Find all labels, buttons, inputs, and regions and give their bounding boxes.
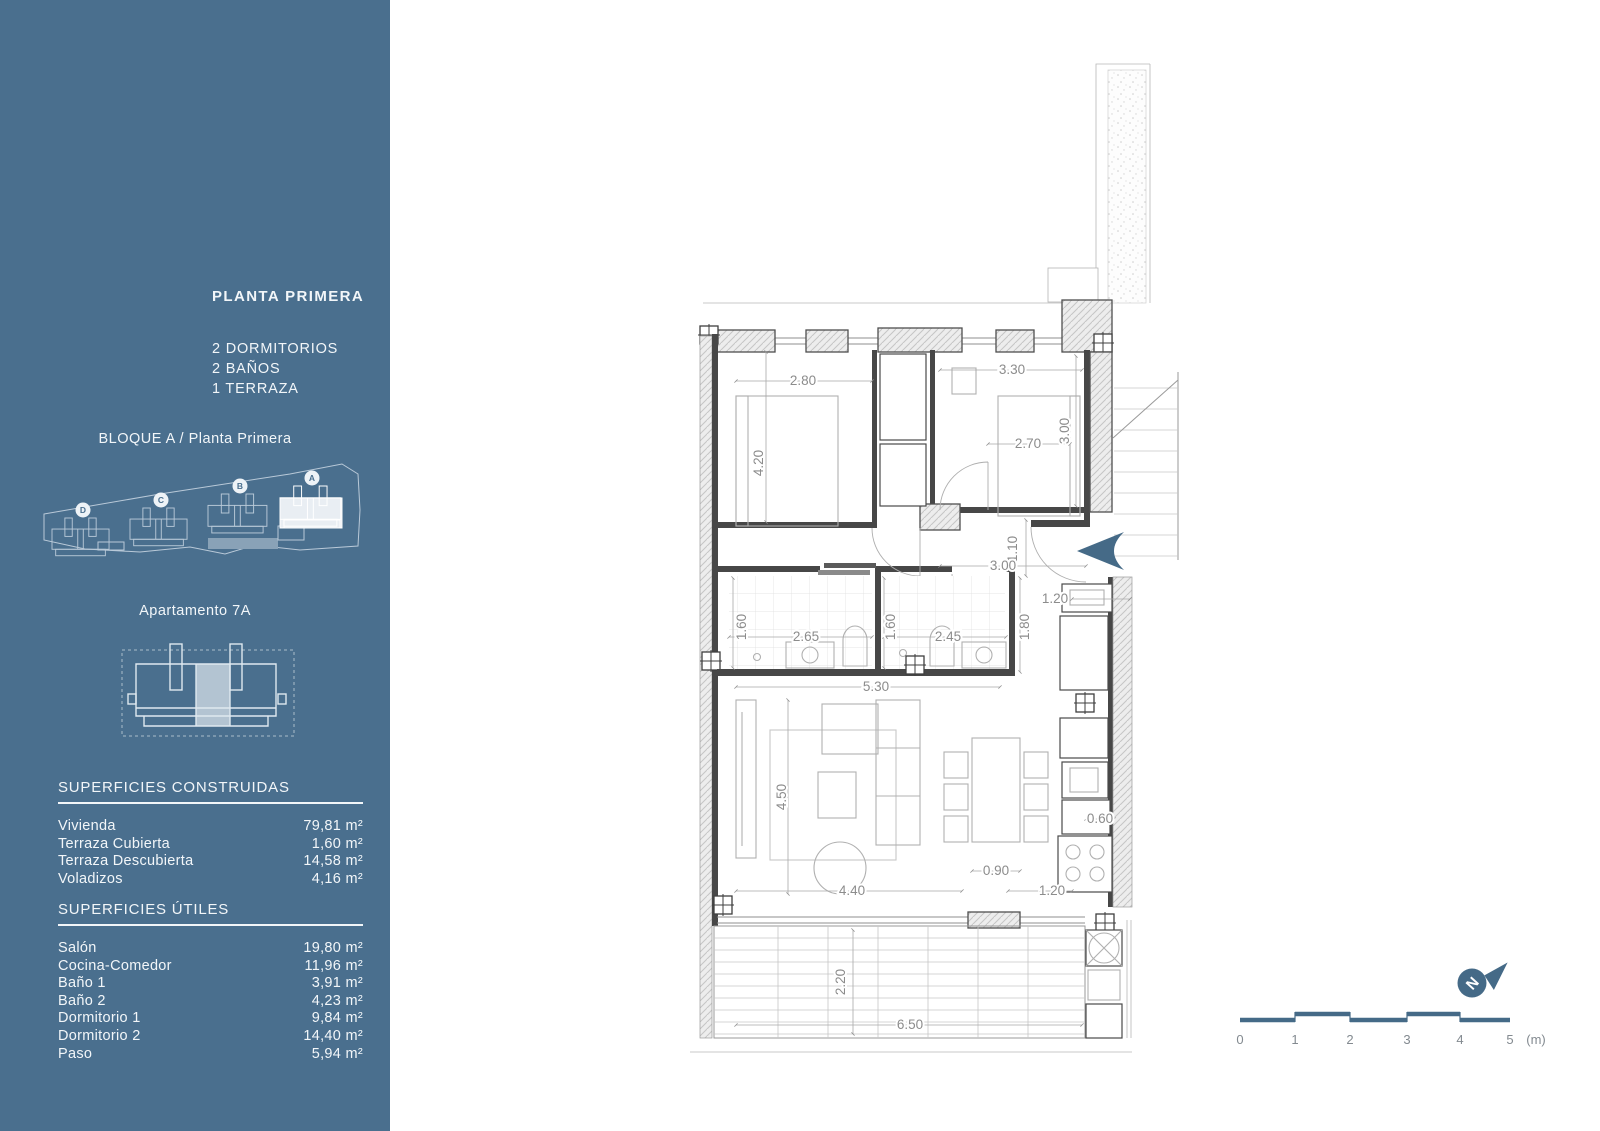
dim-label: 2.80 xyxy=(790,373,816,388)
scale-tick-label: 4 xyxy=(1456,1032,1463,1047)
dim-label: 4.20 xyxy=(751,450,766,476)
feature-list: 2 DORMITORIOS 2 BAÑOS 1 TERRAZA xyxy=(212,339,338,399)
dim-label: 4.40 xyxy=(839,883,865,898)
dim-label: 2.70 xyxy=(1015,436,1041,451)
badge-letter: A xyxy=(309,473,315,483)
surface-row: Vivienda 79,81 m² xyxy=(58,818,363,836)
surface-label: Vivienda xyxy=(58,818,116,836)
scale-tick-label: 3 xyxy=(1403,1032,1410,1047)
badge-letter: B xyxy=(237,481,243,491)
dim-label: 2.20 xyxy=(833,969,848,995)
entrance-arrow-icon xyxy=(1077,532,1124,570)
surface-value: 4,23 m² xyxy=(312,993,363,1011)
site-block-a-highlight xyxy=(280,486,342,528)
dim-label: 6.50 xyxy=(897,1017,923,1032)
surface-value: 1,60 m² xyxy=(312,836,363,854)
info-sidebar: PLANTA PRIMERA 2 DORMITORIOS 2 BAÑOS 1 T… xyxy=(0,0,390,1131)
surface-value: 3,91 m² xyxy=(312,975,363,993)
dim-label: 3.00 xyxy=(990,558,1016,573)
block-label: BLOQUE A / Planta Primera xyxy=(28,431,362,447)
dim-label: 3.30 xyxy=(999,362,1025,377)
apartment-label: Apartamento 7A xyxy=(28,603,362,619)
surface-label: Terraza Cubierta xyxy=(58,836,170,854)
section-title: SUPERFICIES CONSTRUIDAS xyxy=(58,779,363,804)
bathroom1 xyxy=(729,576,872,669)
surface-row: Dormitorio 2 14,40 m² xyxy=(58,1028,363,1046)
surface-row: Voladizos 4,16 m² xyxy=(58,871,363,889)
surface-label: Voladizos xyxy=(58,871,123,889)
scale-tick-label: 2 xyxy=(1346,1032,1353,1047)
site-context xyxy=(703,64,1150,303)
surface-value: 5,94 m² xyxy=(312,1046,363,1064)
dim-label: 3.00 xyxy=(1057,418,1072,444)
badge-letter: D xyxy=(80,505,86,515)
north-wall xyxy=(698,300,1114,354)
surface-row: Dormitorio 1 9,84 m² xyxy=(58,1010,363,1028)
surface-value: 14,58 m² xyxy=(303,853,363,871)
surface-row: Terraza Descubierta 14,58 m² xyxy=(58,853,363,871)
site-plan-diagram: D C B A xyxy=(40,450,370,570)
dim-label: 1.80 xyxy=(1017,614,1032,640)
badge-letter: C xyxy=(158,495,164,505)
section-title: SUPERFICIES ÚTILES xyxy=(58,901,363,926)
surface-label: Dormitorio 2 xyxy=(58,1028,141,1046)
dim-label: 1.20 xyxy=(1042,591,1068,606)
surface-label: Baño 2 xyxy=(58,993,106,1011)
surface-value: 14,40 m² xyxy=(303,1028,363,1046)
surface-value: 19,80 m² xyxy=(303,940,363,958)
brochure-page: 2.80 3.30 4.20 3.00 2.70 1.10 3.00 1.20 … xyxy=(0,0,1600,1131)
surface-label: Paso xyxy=(58,1046,92,1064)
dim-label: 2.45 xyxy=(935,629,961,644)
kitchen xyxy=(1058,584,1112,892)
surface-row: Paso 5,94 m² xyxy=(58,1046,363,1064)
bathroom2 xyxy=(884,576,1006,676)
surface-value: 79,81 m² xyxy=(303,818,363,836)
scale-unit-label: (m) xyxy=(1526,1032,1546,1047)
surface-label: Salón xyxy=(58,940,97,958)
wardrobe xyxy=(880,354,926,506)
surface-row: Salón 19,80 m² xyxy=(58,940,363,958)
dim-label: 1.20 xyxy=(1039,883,1065,898)
feature-item: 2 DORMITORIOS xyxy=(212,339,338,359)
service-shaft xyxy=(1086,920,1131,1038)
west-wall xyxy=(700,334,734,1038)
dim-label: 0.60 xyxy=(1087,811,1113,826)
scale-tick-label: 0 xyxy=(1236,1032,1243,1047)
surface-label: Terraza Descubierta xyxy=(58,853,193,871)
surface-label: Cocina-Comedor xyxy=(58,958,172,976)
north-compass-icon: N xyxy=(1458,960,1511,998)
page-title: PLANTA PRIMERA xyxy=(212,288,364,305)
surface-label: Dormitorio 1 xyxy=(58,1010,141,1028)
surface-row: Terraza Cubierta 1,60 m² xyxy=(58,836,363,854)
feature-item: 1 TERRAZA xyxy=(212,379,338,399)
dim-label: 0.90 xyxy=(983,863,1009,878)
dim-label: 4.50 xyxy=(774,784,789,810)
surface-value: 11,96 m² xyxy=(304,958,363,976)
staircase xyxy=(1113,372,1178,560)
scale-bar: 0 1 2 3 4 5 (m) xyxy=(1236,1012,1545,1047)
scale-tick-label: 1 xyxy=(1291,1032,1298,1047)
feature-item: 2 BAÑOS xyxy=(212,359,338,379)
surface-label: Baño 1 xyxy=(58,975,106,993)
scale-tick-label: 5 xyxy=(1506,1032,1513,1047)
section-superficies-utiles: SUPERFICIES ÚTILES Salón 19,80 m² Cocina… xyxy=(58,901,363,1063)
surface-value: 9,84 m² xyxy=(312,1010,363,1028)
surface-row: Baño 2 4,23 m² xyxy=(58,993,363,1011)
surface-value: 4,16 m² xyxy=(312,871,363,889)
apartment-highlight xyxy=(196,664,230,726)
dim-label: 1.60 xyxy=(734,614,749,640)
section-superficies-construidas: SUPERFICIES CONSTRUIDAS Vivienda 79,81 m… xyxy=(58,779,363,888)
apartment-block-diagram xyxy=(118,624,303,742)
surface-row: Baño 1 3,91 m² xyxy=(58,975,363,993)
surface-row: Cocina-Comedor 11,96 m² xyxy=(58,958,363,976)
dim-label: 5.30 xyxy=(863,679,889,694)
dim-label: 1.60 xyxy=(883,614,898,640)
dim-label: 2.65 xyxy=(793,629,819,644)
